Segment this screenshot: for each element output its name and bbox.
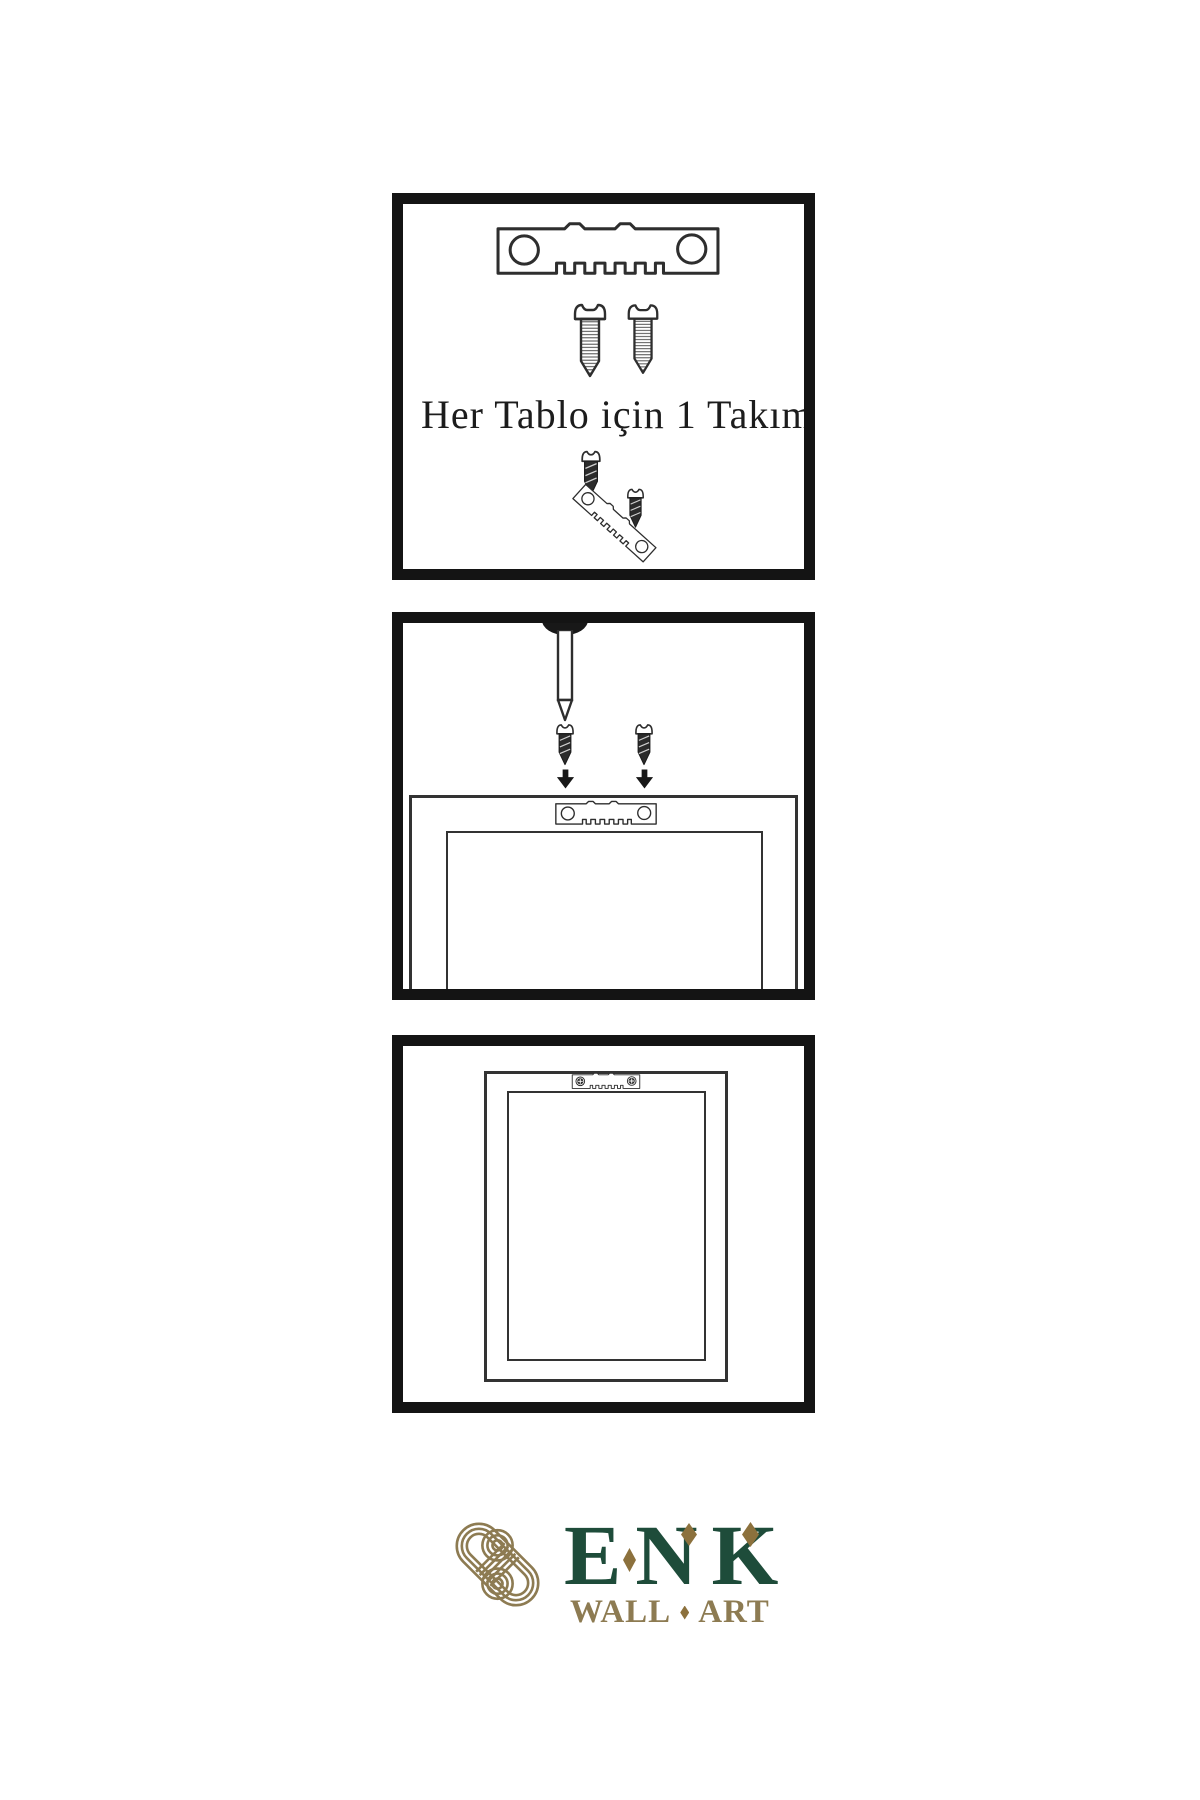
screw-dark-icon [554,722,576,769]
frame-back-inner [446,831,763,1000]
panel-hanging-result [392,1035,815,1413]
panel-hardware-kit: Her Tablo için 1 Takım [392,193,815,580]
panel-mounting-step [392,612,815,1000]
mounted-sawtooth-hanger-icon [571,1072,641,1090]
sawtooth-hanger-icon [554,800,658,826]
down-arrow-icon [555,769,576,789]
screw-dark-icon [625,486,646,532]
tagline-word: WALL [570,1596,671,1629]
brand-name: ENK [564,1512,792,1598]
tilted-sawtooth-hanger-icon [570,480,660,564]
brand-tagline: WALL ART [570,1596,770,1629]
nail-icon [555,630,575,722]
tagline-diamond-icon [680,1606,689,1620]
sawtooth-hanger-icon [494,220,722,278]
knot-emblem-icon [437,1502,558,1627]
kit-caption: Her Tablo için 1 Takım [421,395,811,435]
screw-icon [570,301,610,383]
instruction-sheet: Her Tablo için 1 Takım [0,0,1200,1800]
phillips-screw-icon [577,1078,583,1084]
tagline-word: ART [698,1596,770,1629]
down-arrow-icon [634,769,655,789]
screw-icon [624,301,662,380]
frame-back-inner [507,1091,706,1361]
phillips-screw-icon [629,1078,635,1084]
screw-dark-icon [633,722,655,769]
